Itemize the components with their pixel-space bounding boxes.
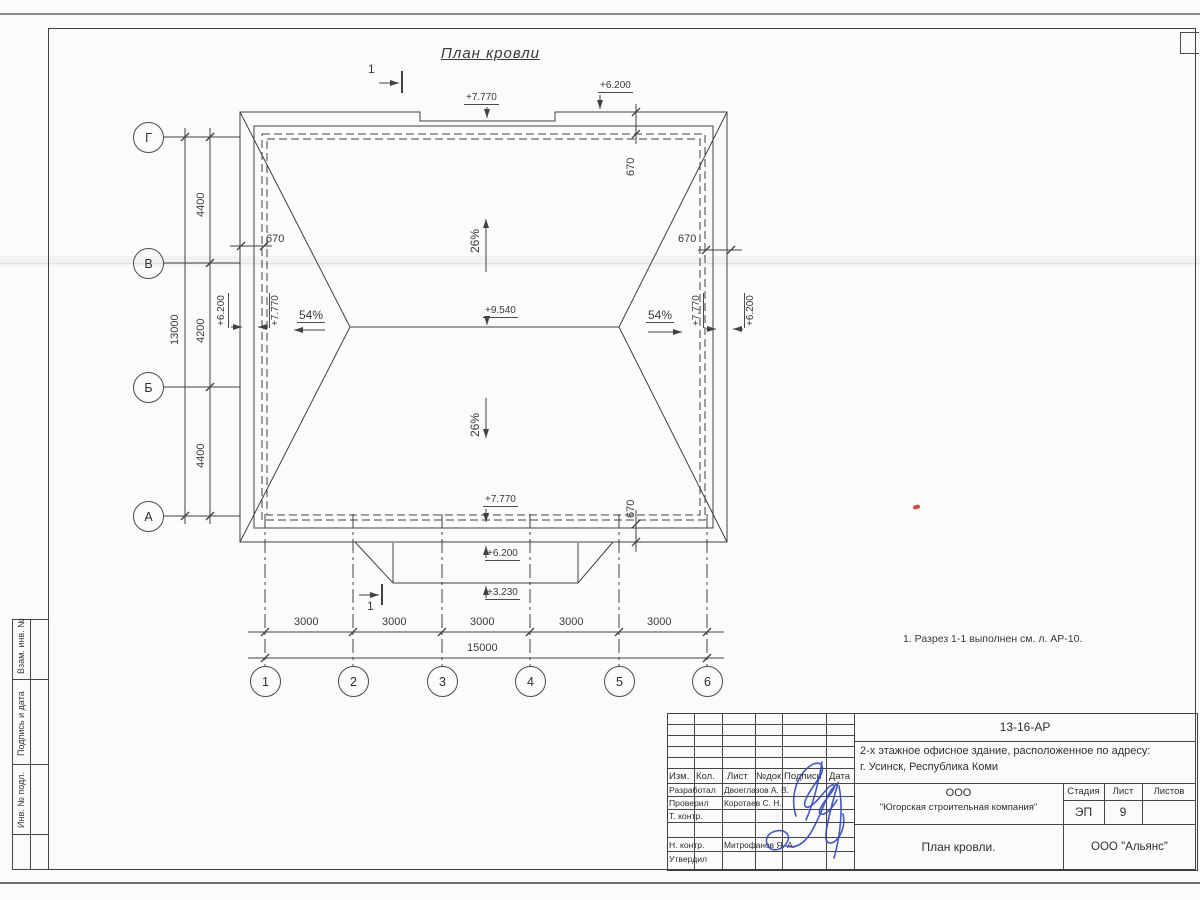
scanned-drawing-sheet: Взам. инв. № Подпись и дата Инв. № подл. (0, 0, 1200, 900)
signature-ink (0, 0, 1200, 900)
